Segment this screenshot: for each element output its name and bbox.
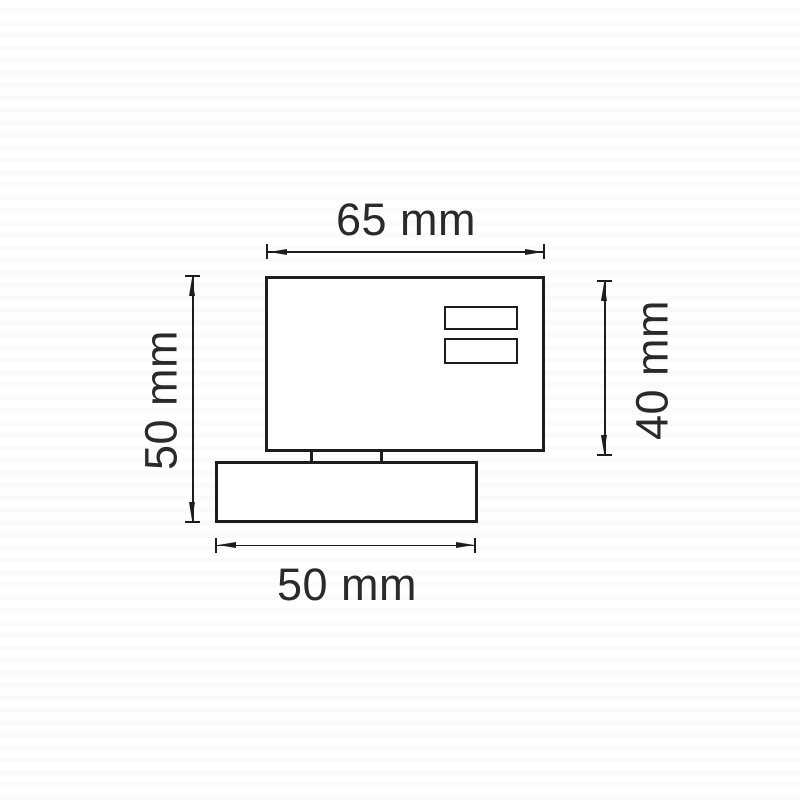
fixture-slot-bottom [444, 338, 518, 364]
dimension-right-end-tick-bottom [597, 454, 612, 456]
dimension-left-label: 50 mm [139, 330, 184, 470]
dimension-left-line [192, 276, 194, 522]
dimension-right-end-tick-top [597, 280, 612, 282]
dimension-left-arrowhead-bottom [189, 502, 195, 520]
fixture-body-outline [265, 276, 545, 452]
dimension-left-end-tick-top [185, 275, 200, 277]
dimension-bottom-end-tick-left [215, 538, 217, 553]
fixture-base-outline [215, 461, 478, 523]
dimension-bottom-end-tick-right [474, 538, 476, 553]
dimension-left-end-tick-bottom [185, 521, 200, 523]
dimension-drawing: 65 mm 50 mm 40 mm 50 mm [0, 0, 800, 800]
dimension-top-end-tick-left [266, 244, 268, 259]
dimension-right-arrowhead-bottom [601, 435, 607, 453]
dimension-bottom-arrowhead-left [218, 542, 236, 548]
dimension-left-arrowhead-top [189, 278, 195, 296]
dimension-right-arrowhead-top [601, 283, 607, 301]
fixture-slot-top [444, 306, 518, 330]
dimension-bottom-arrowhead-right [456, 542, 474, 548]
dimension-bottom-label: 50 mm [277, 562, 417, 607]
dimension-bottom-line [216, 545, 476, 547]
dimension-top-arrowhead-right [525, 249, 543, 255]
dimension-top-line [267, 251, 544, 253]
dimension-right-label: 40 mm [630, 300, 675, 440]
dimension-top-label: 65 mm [336, 197, 476, 242]
dimension-top-end-tick-right [543, 244, 545, 259]
dimension-right-line [604, 281, 606, 455]
dimension-top-arrowhead-left [269, 249, 287, 255]
